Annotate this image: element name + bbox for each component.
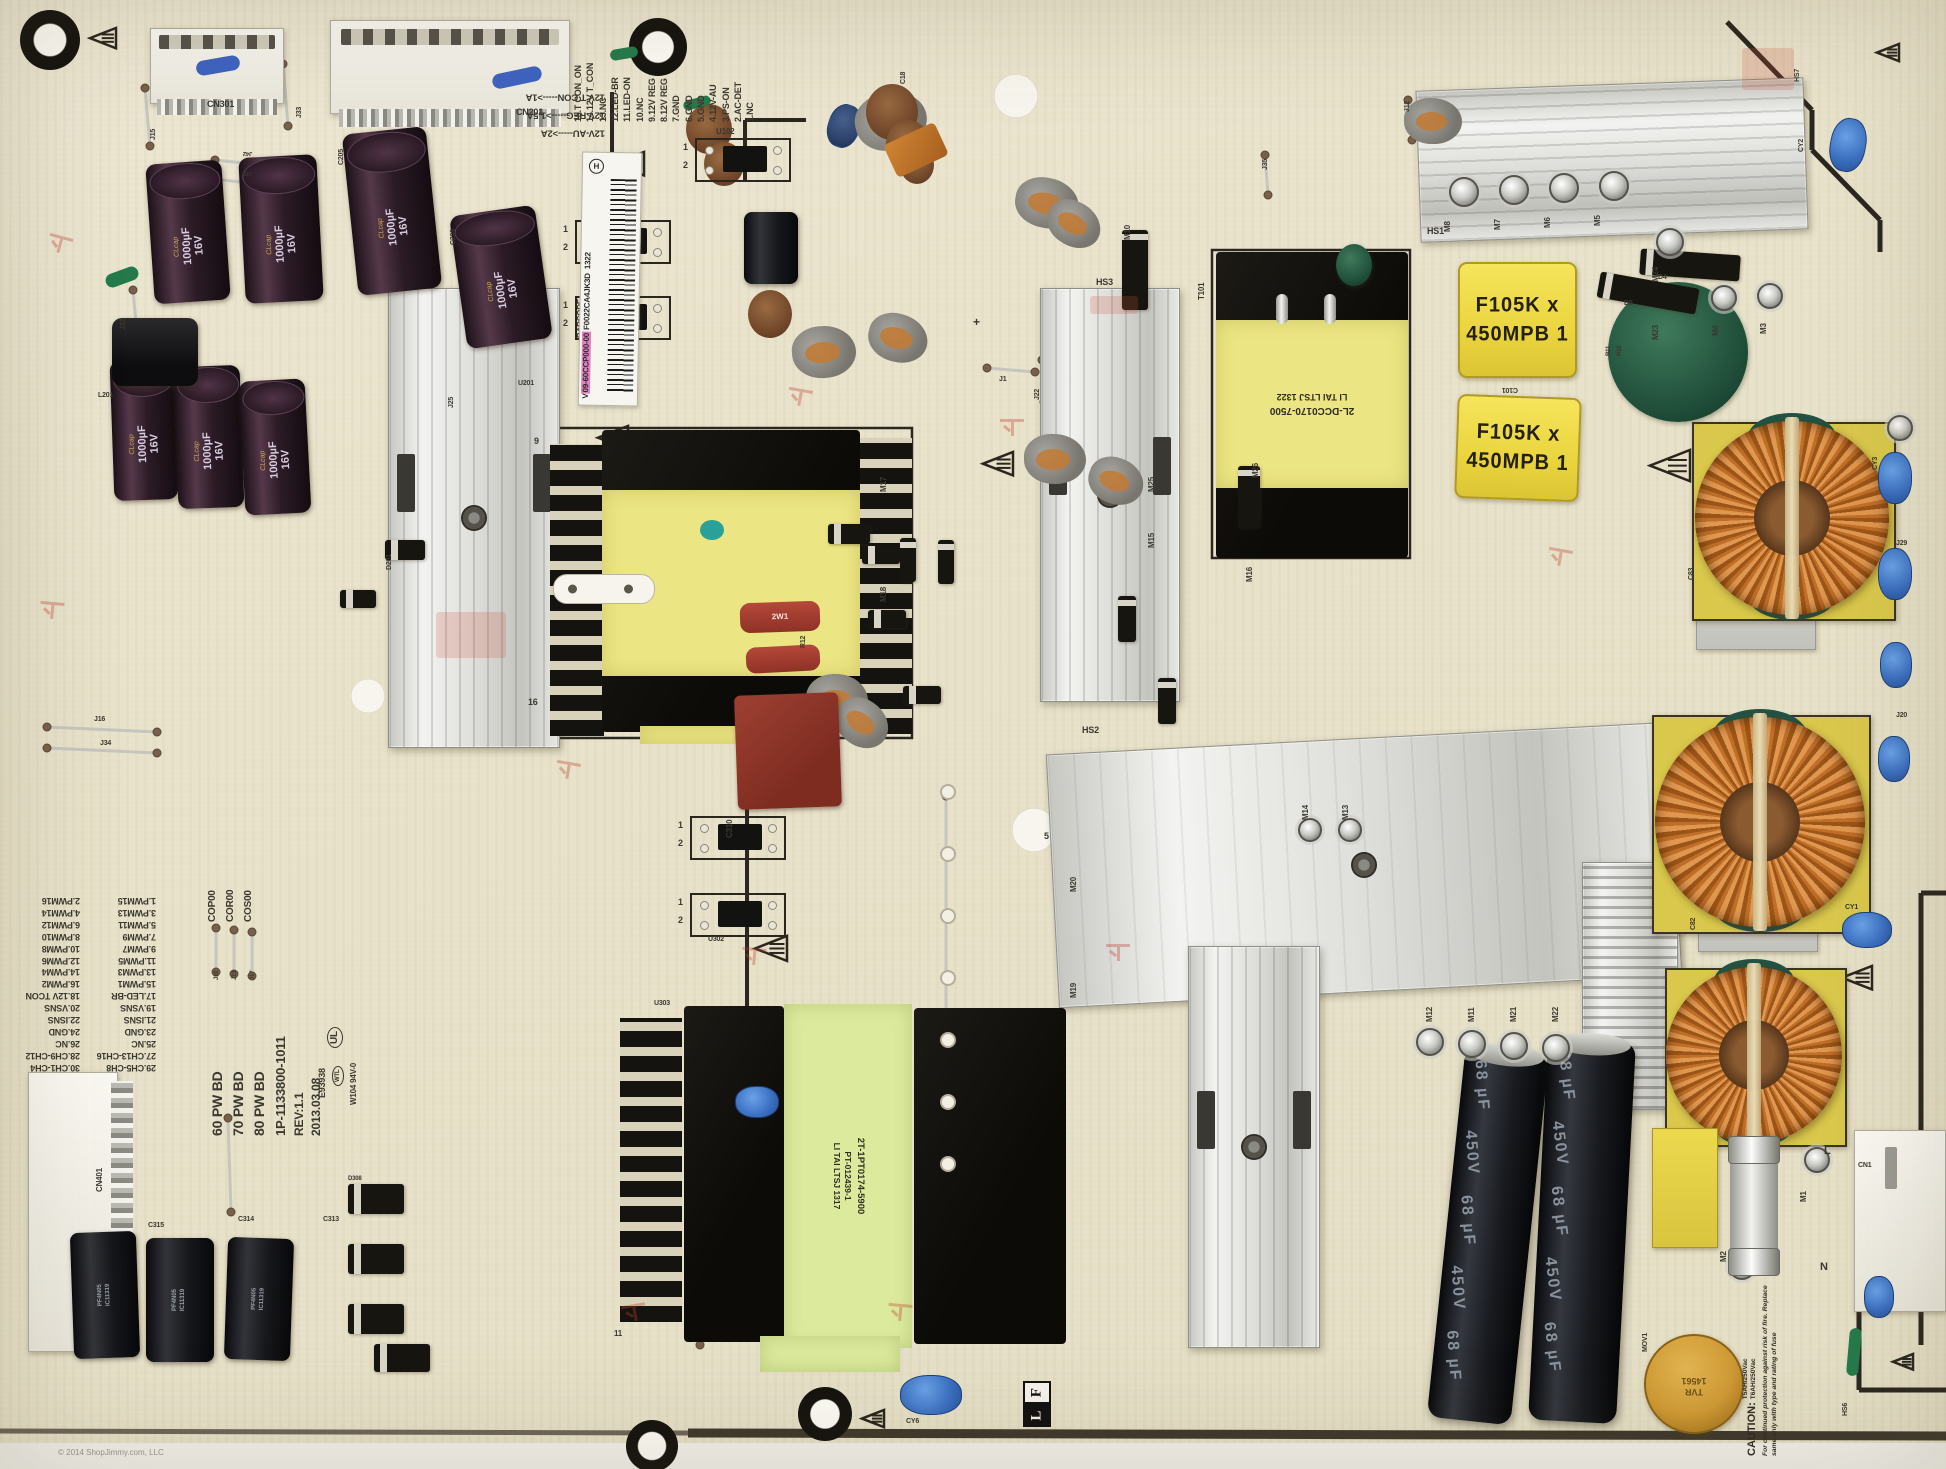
silk-label: 18.12V TCON — [8, 991, 80, 1000]
sticker-text: V09-60CCP000-00 F0022CA4JK3D 1322 — [581, 252, 593, 399]
silk-label: MOV1 — [1642, 1333, 1649, 1352]
silk-label: CN401 — [96, 1168, 104, 1192]
silk-label: C83 — [1688, 568, 1695, 580]
silk-label: 10.NC — [636, 97, 645, 122]
silk-label: L201 — [98, 392, 113, 399]
silk-label: 6.GND — [685, 95, 694, 122]
silk-label: M22 — [1552, 1007, 1560, 1022]
silk-label: J34 — [100, 740, 111, 747]
caution-notice: CAUTION:T5AH/250VacT6AH/250Vac For conti… — [1742, 1276, 1780, 1456]
silk-label: 14.PWM4 — [8, 967, 80, 976]
silk-label: 24.GND — [8, 1027, 80, 1036]
silk-label: 12V T CON----->1A — [470, 92, 605, 102]
silk-label: CY1 — [1845, 904, 1858, 911]
silk-label: W104 94V-0 — [350, 1063, 358, 1105]
silk-label: 4.PWM14 — [8, 908, 80, 917]
caution-body: For continued protection against risk of… — [1762, 1276, 1780, 1456]
silk-label: 17.LED-BR — [84, 991, 156, 1000]
silk-label: 27.CH13-CH16 — [84, 1051, 156, 1060]
silk-label: 11 — [614, 1330, 622, 1338]
silk-label: M6 — [1544, 217, 1552, 228]
silk-label: M23 — [1652, 325, 1660, 340]
silk-label: 16.PWM2 — [8, 979, 80, 988]
silk-label: 28.CH9-CH12 — [8, 1051, 80, 1060]
silk-label: 3.PS-ON — [722, 87, 731, 122]
silk-label: M4 — [1712, 325, 1720, 336]
silk-label: 12.PWM6 — [8, 956, 80, 965]
silk-label: 9 — [534, 437, 539, 446]
silk-label: 21.ISNS — [84, 1015, 156, 1024]
silk-label: 5 — [1044, 832, 1049, 841]
silk-label: 19.VSNS — [84, 1003, 156, 1012]
silk-label: J29 — [1896, 540, 1907, 547]
silk-label: T101 — [1198, 283, 1206, 300]
silk-label: 30.CH1-CH4 — [8, 1063, 80, 1072]
silk-label: J15 — [150, 129, 157, 140]
silk-label: J1 — [999, 376, 1006, 383]
silk-label: 1.PWM15 — [84, 896, 156, 905]
silk-label: 4.12V-AU — [709, 85, 718, 122]
silk-label: COS00 — [244, 890, 254, 922]
silk-label: J10 — [214, 971, 220, 980]
silk-label: M13 — [1342, 805, 1350, 820]
silk-label: C314 — [238, 1216, 254, 1223]
silk-label: CY2 — [1798, 139, 1805, 152]
silk-label: D4 — [1658, 274, 1667, 281]
silk-label: 2013.03.08 — [310, 1078, 322, 1136]
silk-label: 20.VSNS — [8, 1003, 80, 1012]
silk-label: M8 — [1444, 221, 1452, 232]
silk-label: M12 — [1426, 1007, 1434, 1022]
silk-label: J22 — [1034, 389, 1041, 400]
silk-label: C101 — [1502, 386, 1518, 393]
silk-label: REV:1.1 — [293, 1093, 305, 1136]
silk-label: HS6 — [1842, 1403, 1849, 1416]
silk-label: 26.NC — [8, 1039, 80, 1048]
silk-label: 1P-1133800-1011 — [274, 1036, 287, 1136]
silk-label: M17 — [880, 477, 888, 492]
silk-label: M25 — [1148, 477, 1156, 492]
silk-label: 70 PW BD — [231, 1071, 245, 1136]
silk-label: 5.PWM11 — [84, 920, 156, 929]
silk-label: M16 — [1246, 567, 1254, 582]
silk-label: M11 — [1468, 1007, 1476, 1022]
silk-label: C310 — [726, 820, 734, 838]
caution-fuse-ratings: T5AH/250VacT6AH/250Vac — [1742, 1358, 1758, 1399]
caution-head: CAUTION: — [1746, 1402, 1758, 1456]
silk-label: 2.AC-DET — [734, 82, 743, 122]
silk-label: 12V REG----->1.5A — [470, 110, 605, 120]
silk-label: M18 — [880, 587, 888, 602]
sticker-circle-mark: H — [589, 159, 604, 174]
lead-free-logo: F L — [1023, 1381, 1051, 1427]
silk-label: 25.NC — [84, 1039, 156, 1048]
silk-label: WTL — [332, 1066, 344, 1086]
silk-label: R11 — [1606, 346, 1612, 356]
silk-label: M5 — [1594, 215, 1602, 226]
silk-label: M10 — [1124, 225, 1132, 240]
silk-label: 11.PWM5 — [84, 956, 156, 965]
silk-label: D201 — [386, 554, 393, 570]
silk-label: + — [973, 316, 980, 328]
silk-label: UL — [327, 1027, 343, 1048]
silk-label: 7.PWM9 — [84, 932, 156, 941]
silkscreen-labels-layer: CN301CN201J15J33J42J19J32J16J34L201C205C… — [0, 0, 1946, 1469]
silk-label: 12.LED-BR — [611, 77, 620, 122]
barcode-sticker: H V09-60CCP000-00 F0022CA4JK3D 1322 — [578, 151, 642, 406]
silk-label: 9.12V REG — [648, 78, 657, 122]
silk-label: N — [1820, 1262, 1828, 1273]
silk-label: C203 — [450, 229, 457, 245]
silk-label: L — [1824, 1146, 1831, 1157]
silk-label: 15.PWM1 — [84, 979, 156, 988]
silk-label: 8.PWM10 — [8, 932, 80, 941]
silk-label: 23.GND — [84, 1027, 156, 1036]
silk-label: CN1 — [1858, 1162, 1871, 1169]
silk-label: C315 — [148, 1222, 164, 1229]
silk-label: CN301 — [207, 100, 234, 109]
silk-label: HS3 — [1096, 278, 1113, 287]
barcode-icon — [607, 179, 637, 393]
silk-label: COP00 — [208, 890, 218, 922]
silk-label: J33 — [296, 107, 303, 118]
silk-label: 11.LED-ON — [623, 77, 632, 122]
silk-label: C313 — [323, 1216, 339, 1223]
silk-label: 5.GND — [697, 95, 706, 122]
silk-label: C205 — [338, 149, 345, 165]
silk-label: CY6 — [906, 1418, 919, 1425]
silk-label: J12 — [1404, 101, 1411, 112]
silk-label: M26 — [1252, 463, 1260, 478]
silk-label: 12V-AU----->2A — [470, 128, 605, 138]
silk-label: M14 — [1302, 805, 1310, 820]
silk-label: U302 — [708, 936, 724, 943]
silk-label: J35 — [1262, 159, 1269, 170]
silk-label: U303 — [654, 1000, 670, 1007]
silk-label: 7.GND — [672, 95, 681, 122]
silk-label: 2.PWM16 — [8, 896, 80, 905]
silk-label: J19 — [243, 170, 252, 176]
silk-label: 6.PWM12 — [8, 920, 80, 929]
silk-label: R10 — [1617, 346, 1623, 356]
silk-label: HS7 — [1794, 69, 1801, 82]
silk-label: 22.ISNS — [8, 1015, 80, 1024]
silk-label: M1 — [1800, 1191, 1808, 1202]
silk-label: J32 — [120, 319, 127, 330]
silk-label: M19 — [1070, 983, 1078, 998]
silk-label: D5 — [1624, 300, 1633, 307]
silk-label: 80 PW BD — [252, 1071, 266, 1136]
silk-label: M7 — [1494, 219, 1502, 230]
silk-label: R12 — [800, 636, 807, 648]
pcb-photo: 2L-DCC0170-7500LI TAI LTSJ 13222T-1PT017… — [0, 0, 1946, 1469]
silk-label: 8.12V REG — [660, 78, 669, 122]
silk-label: M15 — [1148, 533, 1156, 548]
silk-label: J25 — [448, 397, 455, 408]
silk-label: 9.PWM7 — [84, 944, 156, 953]
silk-label: U102 — [716, 128, 734, 136]
silk-label: HS1 — [1427, 227, 1444, 236]
silk-label: U201 — [518, 380, 534, 387]
silk-label: J17 — [250, 971, 256, 980]
silk-label: CY3 — [1872, 457, 1879, 470]
silk-label: J13 — [232, 971, 238, 980]
silk-label: M21 — [1510, 1007, 1518, 1022]
silk-label: C82 — [1690, 918, 1697, 930]
silk-label: 3.PWM13 — [84, 908, 156, 917]
silk-label: M20 — [1070, 877, 1078, 892]
silk-label: M3 — [1760, 323, 1768, 334]
silk-label: 10.PWM8 — [8, 944, 80, 953]
silk-label: 16 — [528, 698, 538, 707]
silk-label: COR00 — [226, 890, 236, 922]
silk-label: J42 — [243, 150, 252, 156]
silk-label: J20 — [1896, 712, 1907, 719]
silk-label: 13.PWM3 — [84, 967, 156, 976]
silk-label: 1.NC — [746, 102, 755, 122]
silk-label: HS2 — [1082, 726, 1099, 735]
watermark-copyright: © 2014 ShopJimmy.com, LLC — [58, 1448, 164, 1457]
silk-label: 29.CH5-CH8 — [84, 1063, 156, 1072]
silk-label: 60 PW BD — [210, 1071, 224, 1136]
silk-label: J16 — [94, 716, 105, 723]
silk-label: C18 — [900, 72, 907, 84]
silk-label: M2 — [1720, 1251, 1728, 1262]
silk-label: D308 — [348, 1176, 362, 1182]
